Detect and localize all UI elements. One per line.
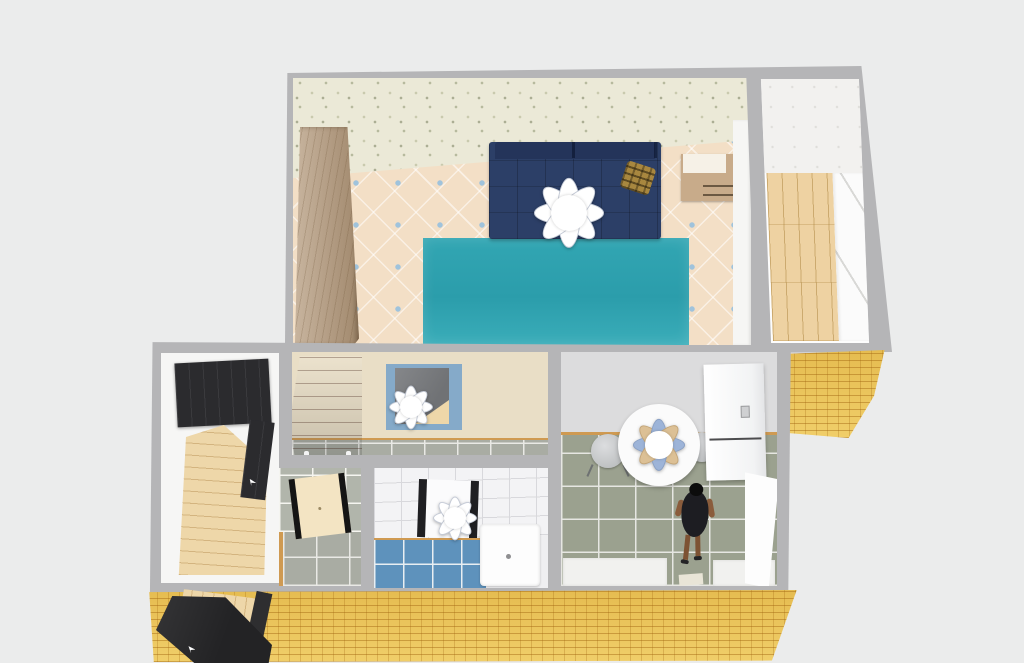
floor-plan-render [0,0,1024,663]
kitchen [561,352,777,586]
entrance-hall [161,353,279,583]
petal [448,496,463,540]
living-room [293,78,751,345]
toilet-floor [279,532,361,586]
hall-wardrobe [174,359,271,428]
person-leg [683,535,691,560]
toilet-room [279,468,361,586]
wall-corridor-kitchen [548,348,561,590]
sofa-seam [572,142,575,158]
hall-interior-door [240,420,274,500]
petal [433,511,477,526]
balcony-wall [761,79,863,173]
upper-apartment-block [280,66,892,356]
person-foot [680,559,689,564]
kitchen-counter-left [563,558,667,586]
sofa-seam [654,142,657,158]
petal [534,201,604,225]
person [671,477,716,574]
petal [404,385,419,429]
ceiling-light-living [534,178,604,248]
corridor-cabinet [292,356,362,462]
ceiling-light-bathroom [433,496,477,540]
petal [389,400,433,415]
wall-toilet-bathroom [361,468,374,586]
floor-mat [679,573,704,586]
person-dress [681,491,710,538]
nightstand [681,154,736,201]
ceiling-light-kitchen [633,419,685,471]
dining-table [618,404,700,486]
ceiling-light-corridor [389,385,433,429]
teal-rug [423,238,689,345]
balcony [761,79,869,343]
washing-machine [480,524,540,586]
bathroom-blue-floor [374,538,486,588]
person-foot [694,556,702,561]
corridor [292,352,554,470]
lower-apartment-block [148,340,796,598]
balcony-floor [767,173,839,341]
petal [557,178,581,248]
wall-corridor-bathroom [279,455,562,468]
refrigerator [703,363,766,481]
bathroom [374,468,548,588]
balcony-window-sills [833,173,869,341]
toilet-door [289,473,352,539]
